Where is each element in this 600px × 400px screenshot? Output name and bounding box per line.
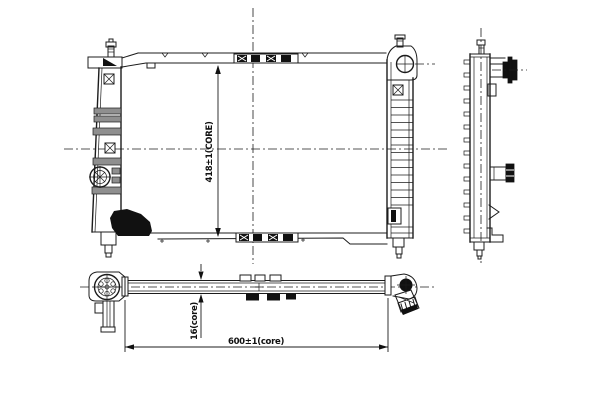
weld-tick — [202, 53, 208, 57]
side-bottom-pin — [474, 242, 484, 259]
bleed-valve — [106, 39, 116, 57]
bottom-left-elbow — [89, 272, 125, 332]
right-tank — [387, 35, 435, 258]
arrow-up — [215, 65, 221, 74]
dim-core-width-label: 600±1(core) — [228, 337, 284, 347]
inlet-port — [89, 166, 111, 188]
tank-rib — [94, 108, 121, 114]
clip-tab — [112, 177, 120, 183]
dim-core-height-label: 418±1(CORE) — [205, 121, 215, 182]
dim-core-width: 600±1(core) — [125, 298, 388, 352]
side-body — [470, 54, 490, 242]
bottom-mid-fixtures — [240, 275, 296, 301]
bottom-rail — [110, 209, 387, 244]
drawing-canvas: 418±1(CORE) — [0, 0, 600, 400]
bottom-right-elbow — [391, 274, 419, 315]
arrow-right — [379, 344, 388, 349]
bottom-mount-fixtures — [236, 233, 298, 242]
arrow-up — [198, 294, 203, 303]
clip-tab — [112, 168, 120, 174]
plus-mark — [255, 283, 263, 291]
side-filler-cap — [488, 57, 527, 96]
boss-square — [393, 85, 403, 95]
corner-shade — [110, 209, 152, 236]
dim-core-height: 418±1(CORE) — [205, 65, 221, 237]
front-view: 418±1(CORE) — [64, 8, 448, 264]
dim-core-thickness-label: 16(core) — [190, 302, 200, 340]
cap-wedge — [103, 58, 117, 66]
boss-square — [104, 74, 114, 84]
arrow-left — [125, 344, 134, 349]
top-mount-fixtures — [234, 54, 298, 63]
plus-mark — [206, 239, 210, 243]
left-bottom-pin — [101, 232, 116, 257]
tank-rib — [93, 158, 121, 165]
tank-rib — [92, 187, 121, 194]
top-rail — [122, 53, 386, 68]
weld-tick — [162, 53, 168, 57]
side-outlet-port — [490, 164, 514, 182]
side-fins — [464, 60, 470, 233]
bottom-view: 16(core) 600±1(core) — [80, 264, 434, 352]
boss-square — [105, 143, 115, 153]
radiator-drawing: 418±1(CORE) — [0, 0, 600, 400]
drain-pin — [393, 238, 404, 258]
tank-rib — [93, 128, 121, 135]
weld-tick — [302, 53, 308, 57]
filler-neck — [387, 35, 435, 80]
tank-rib — [94, 116, 121, 122]
side-view — [464, 28, 527, 266]
clip-notch — [388, 208, 401, 224]
plus-mark — [160, 239, 164, 243]
dim-core-thickness: 16(core) — [190, 264, 204, 340]
arrow-down — [198, 272, 203, 281]
